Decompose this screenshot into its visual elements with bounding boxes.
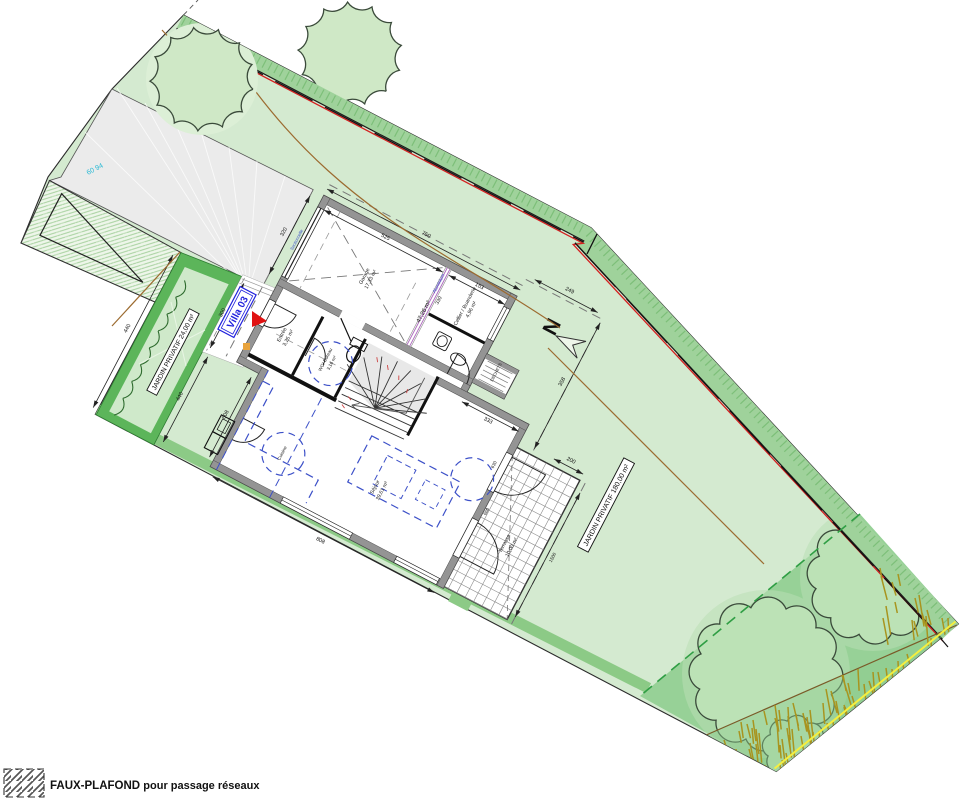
svg-text:FAUX-PLAFOND pour passage rése: FAUX-PLAFOND pour passage réseaux: [50, 780, 260, 792]
